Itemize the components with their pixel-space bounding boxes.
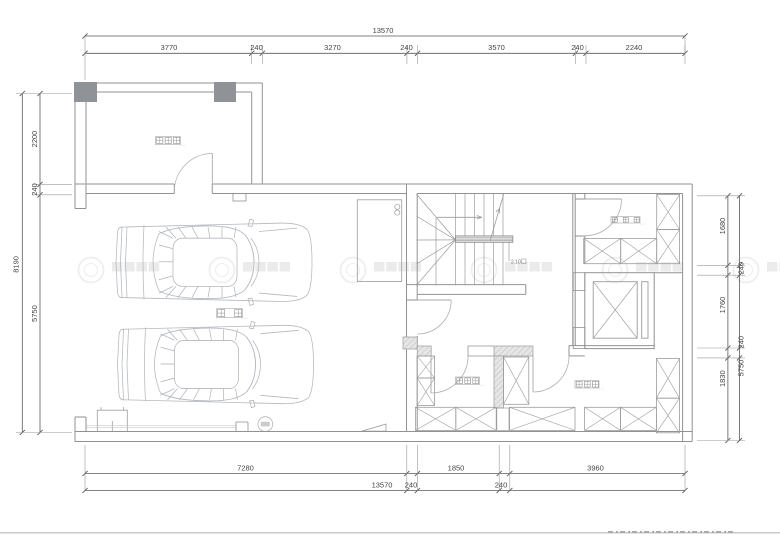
svg-text:3960: 3960 [587,464,604,473]
svg-text:3770: 3770 [161,43,178,52]
svg-text:5750: 5750 [737,360,746,377]
svg-text:240: 240 [400,43,413,52]
svg-text:240: 240 [571,43,584,52]
svg-text:1760: 1760 [718,297,727,314]
svg-text:3270: 3270 [324,43,341,52]
svg-text:1850: 1850 [448,464,465,473]
svg-text:240: 240 [30,183,39,196]
svg-text:5750: 5750 [30,305,39,322]
svg-text:3570: 3570 [488,43,505,52]
svg-text:2.10: 2.10 [511,260,521,266]
svg-text:240: 240 [737,336,746,349]
svg-text:7280: 7280 [237,464,254,473]
svg-text:2240: 2240 [626,43,643,52]
svg-text:13570: 13570 [373,26,394,35]
svg-text:13570: 13570 [372,481,393,490]
svg-text:240: 240 [405,481,418,490]
svg-text:2200: 2200 [30,131,39,148]
svg-text:1680: 1680 [718,218,727,235]
svg-text:240: 240 [737,262,746,275]
svg-text:8190: 8190 [12,256,21,273]
svg-text:240: 240 [495,481,508,490]
svg-text:240: 240 [250,43,263,52]
svg-text:1830: 1830 [718,370,727,387]
